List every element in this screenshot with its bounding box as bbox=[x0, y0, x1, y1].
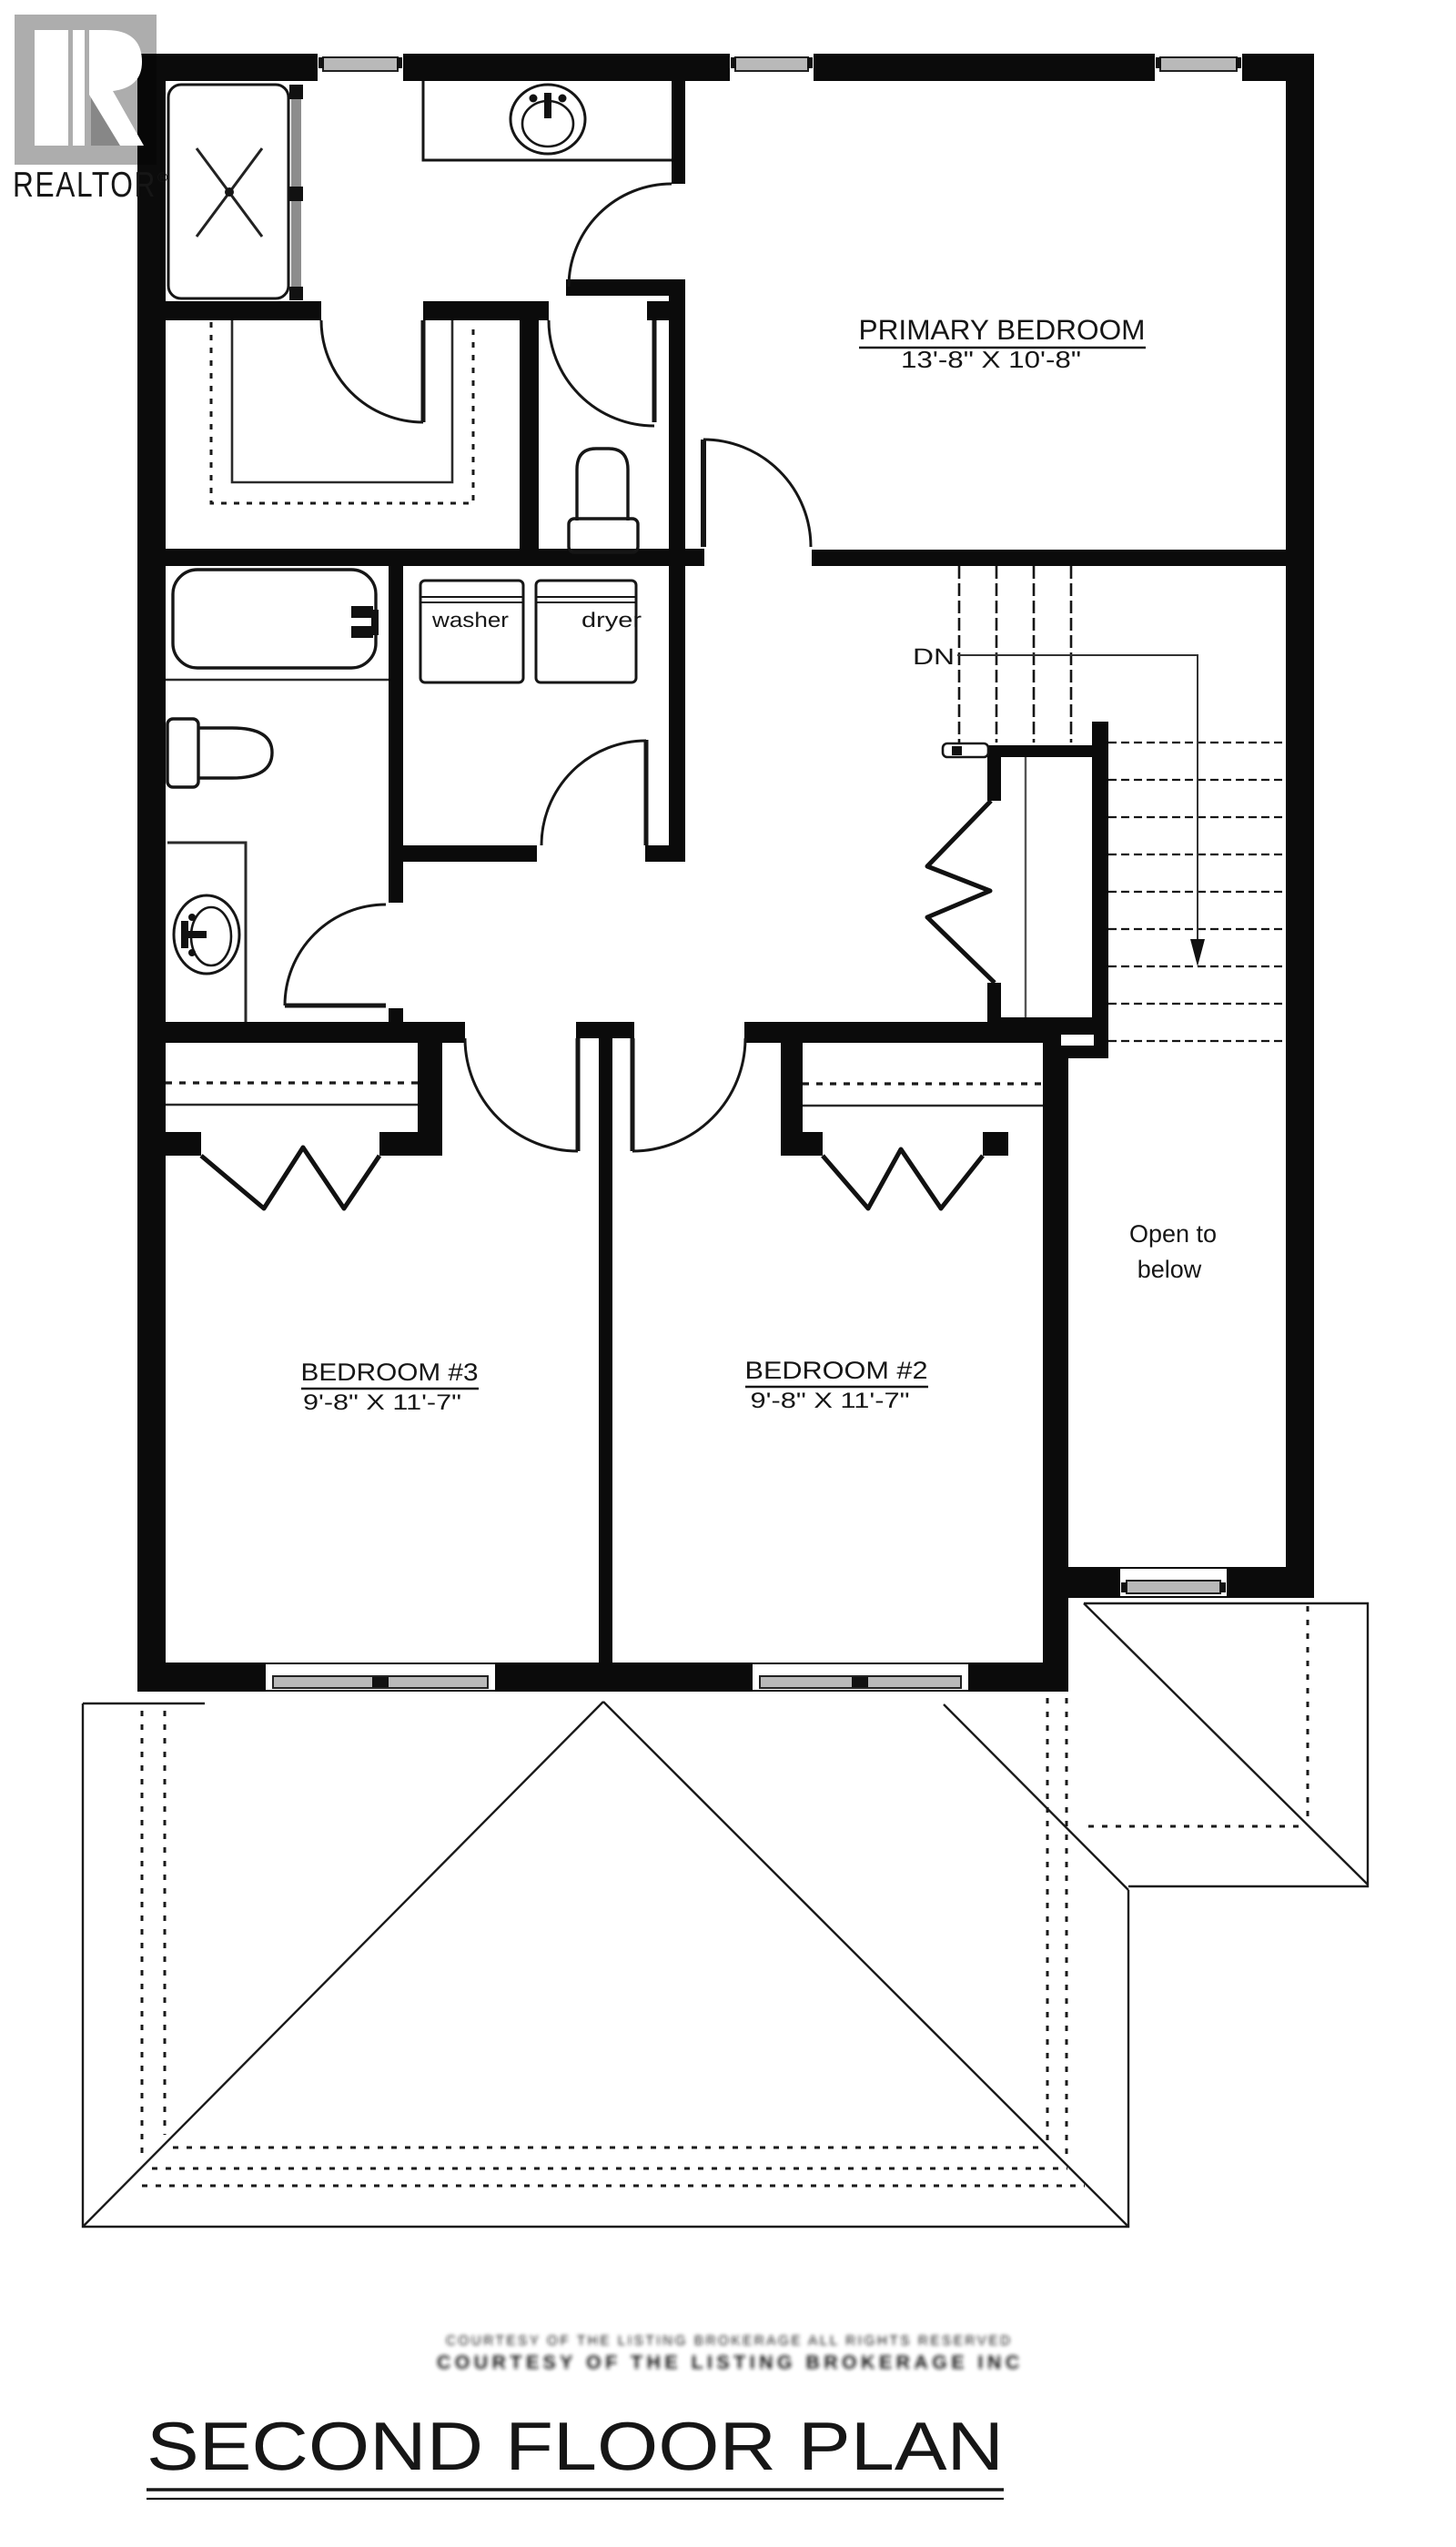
svg-text:13'-8" X 10'-8": 13'-8" X 10'-8" bbox=[901, 346, 1081, 373]
svg-text:REALTOR: REALTOR bbox=[13, 166, 157, 205]
svg-text:Open to: Open to bbox=[1129, 1220, 1217, 1248]
svg-text:BEDROOM #3: BEDROOM #3 bbox=[301, 1359, 479, 1386]
svg-text:PRIMARY BEDROOM: PRIMARY BEDROOM bbox=[859, 314, 1146, 346]
svg-text:9'-8" X 11'-7": 9'-8" X 11'-7" bbox=[751, 1389, 910, 1413]
svg-text:COURTESY OF THE LISTING BROKER: COURTESY OF THE LISTING BROKERAGE ALL RI… bbox=[446, 2333, 1010, 2349]
svg-text:DN: DN bbox=[913, 644, 955, 670]
svg-text:®: ® bbox=[157, 170, 167, 186]
svg-text:9'-8" X 11'-7": 9'-8" X 11'-7" bbox=[303, 1390, 461, 1415]
svg-text:dryer: dryer bbox=[581, 608, 642, 632]
svg-text:below: below bbox=[1137, 1256, 1202, 1283]
svg-text:SECOND FLOOR PLAN: SECOND FLOOR PLAN bbox=[147, 2408, 1004, 2484]
svg-text:washer: washer bbox=[431, 608, 510, 632]
svg-text:BEDROOM #2: BEDROOM #2 bbox=[745, 1357, 928, 1384]
